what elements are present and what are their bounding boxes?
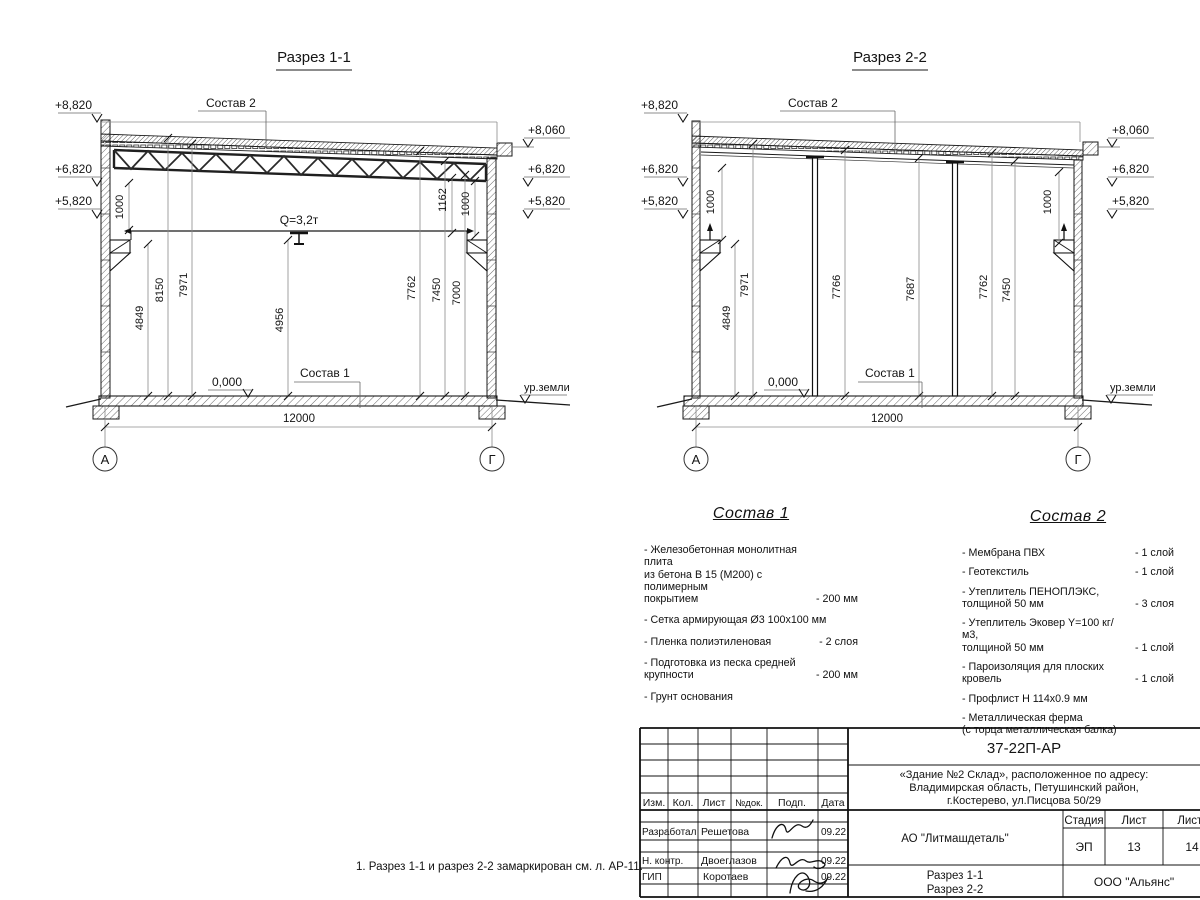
span-dimension: 12000 xyxy=(101,407,496,447)
sheet-content-line1: Разрез 1-1 xyxy=(927,870,983,882)
dim-4849: 4849 xyxy=(721,306,733,330)
dim-7762: 7762 xyxy=(978,275,990,299)
item-name: - Утеплитель Эковер Y=100 кг/м3, толщино… xyxy=(962,617,1129,654)
item-value: - 1 слой xyxy=(1129,547,1174,559)
callout-label: Состав 1 xyxy=(300,366,350,380)
list-item: - Сетка армирующая Ø3 100х100 мм xyxy=(644,614,858,626)
dim-7762: 7762 xyxy=(406,276,418,300)
list-item: - Железобетонная монолитная плита из бет… xyxy=(644,544,858,605)
elevations-right: +8,060 +6,820 +5,820 xyxy=(512,123,570,218)
elevation-label: +8,060 xyxy=(1112,123,1149,137)
top-dimensions: 1000 1162 1000 xyxy=(114,174,479,240)
elevation-label: +6,820 xyxy=(55,162,92,176)
item-name: - Утеплитель ПЕНОПЛЭКС, толщиной 50 мм xyxy=(962,586,1099,611)
elevation-label: +5,820 xyxy=(55,194,92,208)
zero-label: 0,000 xyxy=(212,375,242,389)
right-wall xyxy=(487,158,496,398)
dim-1000-right: 1000 xyxy=(460,192,472,216)
axis-markers: А Г xyxy=(684,447,1090,471)
sostav-2-title: Состав 2 xyxy=(962,508,1174,526)
dim-1162: 1162 xyxy=(437,188,449,212)
elevation-label: +5,820 xyxy=(528,194,565,208)
elevation-label: +5,820 xyxy=(641,194,678,208)
wall-joints xyxy=(692,168,1082,352)
row-developer-name: Решетова xyxy=(701,826,749,838)
ground-label: ур.земли xyxy=(1110,382,1156,394)
left-wall xyxy=(692,121,700,398)
section-1-1: Разрез 1-1 xyxy=(55,49,570,471)
crane-brackets xyxy=(700,223,1074,271)
row-developer-date: 09.22 xyxy=(821,827,846,838)
dim-7971: 7971 xyxy=(178,273,190,297)
callout-label: Состав 1 xyxy=(865,366,915,380)
elevation-label: +6,820 xyxy=(1112,162,1149,176)
axis-g: Г xyxy=(488,452,495,467)
item-name: - Металлическая ферма (с торца металличе… xyxy=(962,712,1117,737)
design-org-name: ООО "Альянс" xyxy=(1094,875,1174,889)
item-name: - Пароизоляция для плоских кровель xyxy=(962,661,1129,686)
row-gip-name: Коротаев xyxy=(703,871,749,883)
signature-developer xyxy=(772,820,813,838)
col-list: Лист xyxy=(703,797,726,809)
item-name: - Пленка полиэтиленовая xyxy=(644,636,771,648)
stage-header: Стадия xyxy=(1064,815,1103,827)
list-item: - Мембрана ПВХ - 1 слой xyxy=(962,547,1174,559)
axis-a: А xyxy=(692,452,701,467)
drawing-sheet: Разрез 1-1 xyxy=(0,0,1200,900)
list-item: - Утеплитель ПЕНОПЛЭКС, толщиной 50 мм -… xyxy=(962,586,1174,611)
col-ndok: №док. xyxy=(735,798,763,809)
item-value: - 200 мм xyxy=(810,669,858,681)
monorail-beam-icon xyxy=(290,233,308,244)
crane-runway: Q=3,2т xyxy=(124,213,474,244)
elevations-left: +8,820 +6,820 +5,820 xyxy=(641,98,688,218)
ground-line-right xyxy=(1082,400,1152,405)
dim-4956: 4956 xyxy=(274,308,286,332)
span-label: 12000 xyxy=(283,413,315,425)
span-dimension: 12000 xyxy=(692,407,1082,447)
elevation-label: +6,820 xyxy=(641,162,678,176)
left-wall xyxy=(101,120,110,398)
list-item: - Подготовка из песка средней крупности … xyxy=(644,657,858,682)
item-name: - Грунт основания xyxy=(644,691,733,703)
list-item: - Геотекстиль - 1 слой xyxy=(962,566,1174,578)
right-wall xyxy=(1074,160,1082,398)
sostav-2-legend: Состав 2 - Мембрана ПВХ - 1 слой - Геоте… xyxy=(962,508,1174,744)
list-item: - Металлическая ферма (с торца металличе… xyxy=(962,712,1174,737)
foundation-left xyxy=(93,406,119,419)
zero-level: 0,000 xyxy=(208,375,253,397)
col-data: Дата xyxy=(821,797,844,809)
project-address-line1: «Здание №2 Склад», расположенное по адре… xyxy=(900,769,1149,781)
sheets-value: 14 xyxy=(1185,840,1199,854)
axis-a: А xyxy=(101,452,110,467)
section-title: Разрез 1-1 xyxy=(277,49,351,66)
row-developer-role: Разработал xyxy=(642,826,697,838)
sostav-1-title: Состав 1 xyxy=(644,505,858,523)
list-item: - Грунт основания xyxy=(644,691,858,703)
item-value: - 1 слой xyxy=(1129,673,1174,685)
elevations-right: +8,060 +6,820 +5,820 xyxy=(1098,123,1154,218)
ground-level-label: ур.земли xyxy=(520,382,570,403)
sheets-header: Листов xyxy=(1177,815,1200,827)
elevation-label: +5,820 xyxy=(1112,194,1149,208)
item-name: - Подготовка из песка средней крупности xyxy=(644,657,796,682)
row-ncontrol-name: Двоеглазов xyxy=(701,855,757,867)
col-podp: Подп. xyxy=(778,797,806,809)
dim-7450: 7450 xyxy=(1001,278,1013,302)
item-value: - 1 слой xyxy=(1129,642,1174,654)
floor-slab xyxy=(99,396,497,406)
dim-1000-left: 1000 xyxy=(705,190,717,214)
dim-7971: 7971 xyxy=(739,273,751,297)
item-name: - Геотекстиль xyxy=(962,566,1029,578)
sostav-1-legend: Состав 1 - Железобетонная монолитная пли… xyxy=(644,505,858,712)
dim-7450: 7450 xyxy=(431,278,443,302)
elevation-label: +8,820 xyxy=(641,98,678,112)
axis-g: Г xyxy=(1074,452,1081,467)
list-item: - Пленка полиэтиленовая - 2 слоя xyxy=(644,636,858,648)
section-2-2: Разрез 2-2 xyxy=(641,49,1156,471)
sheet-header: Лист xyxy=(1122,815,1148,827)
title-block: 37-22П-АР «Здание №2 Склад», расположенн… xyxy=(640,728,1200,897)
roof-end-cap xyxy=(497,143,512,156)
item-name: - Мембрана ПВХ xyxy=(962,547,1045,559)
item-value: - 3 слоя xyxy=(1129,598,1174,610)
customer-name: АО "Литмашдеталь" xyxy=(901,833,1008,845)
col-kol: Кол. xyxy=(673,797,694,809)
item-value: - 200 мм xyxy=(810,593,858,605)
row-gip-role: ГИП xyxy=(642,872,662,883)
elevation-label: +8,820 xyxy=(55,98,92,112)
ground-level-label: ур.земли xyxy=(1106,382,1156,403)
row-ncontrol-role: Н. контр. xyxy=(642,856,683,867)
crane-capacity-label: Q=3,2т xyxy=(280,213,319,227)
roof-end-cap xyxy=(1083,142,1098,155)
stage-value: ЭП xyxy=(1075,840,1092,854)
list-item: - Пароизоляция для плоских кровель - 1 с… xyxy=(962,661,1174,686)
sheet-note: 1. Разрез 1-1 и разрез 2-2 замаркирован … xyxy=(356,861,643,873)
interior-columns xyxy=(806,157,964,396)
span-label: 12000 xyxy=(871,413,903,425)
sheet-content-line2: Разрез 2-2 xyxy=(927,884,983,896)
zero-label: 0,000 xyxy=(768,375,798,389)
dim-1000-left: 1000 xyxy=(114,195,126,219)
top-dimensions: 1000 1000 xyxy=(705,164,1063,247)
elevation-label: +8,060 xyxy=(528,123,565,137)
ground-line-right xyxy=(496,400,570,405)
sections-drawing: Разрез 1-1 xyxy=(0,0,1200,900)
list-item: - Утеплитель Эковер Y=100 кг/м3, толщино… xyxy=(962,617,1174,654)
project-address-line2: Владимирская область, Петушинский район, xyxy=(909,782,1138,794)
dim-7766: 7766 xyxy=(831,275,843,299)
item-value: - 2 слоя xyxy=(813,636,858,648)
dim-7687: 7687 xyxy=(905,277,917,301)
dim-8150: 8150 xyxy=(154,278,166,302)
elevations-left: +8,820 +6,820 +5,820 xyxy=(55,98,102,218)
callout-label: Состав 2 xyxy=(788,96,838,110)
item-name: - Профлист Н 114х0.9 мм xyxy=(962,693,1088,705)
axis-markers: А Г xyxy=(93,447,504,471)
sheet-value: 13 xyxy=(1127,840,1141,854)
item-name: - Железобетонная монолитная плита из бет… xyxy=(644,544,810,605)
project-address-line3: г.Костерево, ул.Писцова 50/29 xyxy=(947,795,1101,807)
elevation-label: +6,820 xyxy=(528,162,565,176)
list-item: - Профлист Н 114х0.9 мм xyxy=(962,693,1174,705)
floor-slab xyxy=(684,396,1083,406)
zero-level: 0,000 xyxy=(764,375,809,397)
ground-label: ур.земли xyxy=(524,382,570,394)
section-title: Разрез 2-2 xyxy=(853,49,927,66)
callout-label: Состав 2 xyxy=(206,96,256,110)
height-dimensions: 4849 7971 7766 7687 7762 7450 xyxy=(721,140,1019,400)
dim-7000: 7000 xyxy=(451,281,463,305)
dim-1000-right: 1000 xyxy=(1042,190,1054,214)
item-value: - 1 слой xyxy=(1129,566,1174,578)
item-name: - Сетка армирующая Ø3 100х100 мм xyxy=(644,614,826,626)
col-izm: Изм. xyxy=(643,797,666,809)
dim-4849: 4849 xyxy=(134,306,146,330)
